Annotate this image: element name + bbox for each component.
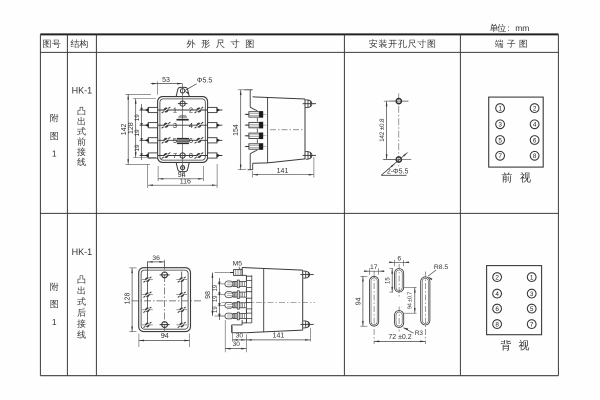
- svg-text:19: 19: [134, 114, 141, 121]
- svg-text:154: 154: [233, 124, 240, 136]
- svg-text:3: 3: [530, 291, 534, 298]
- svg-text:1: 1: [498, 105, 502, 112]
- svg-text:4: 4: [189, 121, 193, 130]
- svg-text:19: 19: [134, 129, 141, 136]
- svg-text:6: 6: [397, 255, 401, 262]
- svg-text:19: 19: [213, 284, 219, 291]
- svg-text:142 ±0.8: 142 ±0.8: [379, 118, 386, 142]
- svg-text:4: 4: [495, 291, 499, 298]
- svg-text:30: 30: [236, 333, 244, 340]
- svg-text:2: 2: [189, 106, 193, 115]
- svg-text:53: 53: [162, 77, 170, 84]
- svg-text:141: 141: [277, 168, 289, 175]
- svg-text:1: 1: [173, 106, 177, 115]
- svg-text:94 ±0.7: 94 ±0.7: [408, 292, 414, 309]
- svg-text:4: 4: [533, 122, 537, 129]
- svg-text:128: 128: [125, 293, 132, 305]
- svg-text:17: 17: [370, 264, 378, 271]
- svg-text:2: 2: [495, 274, 499, 281]
- svg-text:141: 141: [273, 332, 285, 339]
- svg-text:142: 142: [121, 123, 128, 135]
- svg-text:Φ5.5: Φ5.5: [197, 78, 212, 85]
- svg-text:6: 6: [495, 306, 499, 313]
- svg-text:5: 5: [498, 137, 502, 144]
- svg-text:8: 8: [533, 153, 537, 160]
- svg-text:7: 7: [530, 321, 534, 328]
- svg-text:1: 1: [530, 274, 534, 281]
- svg-text:2: 2: [533, 105, 537, 112]
- svg-text:7: 7: [173, 151, 177, 160]
- svg-text:1: 1: [52, 317, 57, 327]
- svg-text:19: 19: [213, 295, 219, 302]
- svg-text:HK-1: HK-1: [72, 247, 93, 257]
- svg-text:mm: mm: [515, 23, 529, 33]
- svg-text:15: 15: [386, 277, 392, 284]
- svg-text:3: 3: [173, 121, 177, 130]
- svg-text:3: 3: [498, 122, 502, 129]
- svg-text:R8.5: R8.5: [434, 264, 449, 271]
- svg-text:94: 94: [161, 333, 169, 340]
- svg-text:5: 5: [530, 306, 534, 313]
- svg-text:19: 19: [213, 306, 219, 313]
- svg-text:98: 98: [205, 291, 212, 299]
- svg-text:36: 36: [152, 255, 160, 262]
- svg-text:116: 116: [180, 179, 191, 186]
- svg-text:1: 1: [52, 148, 57, 158]
- svg-text:R3: R3: [415, 330, 424, 337]
- svg-text:8: 8: [189, 151, 193, 160]
- svg-text:2-Φ5.5: 2-Φ5.5: [387, 169, 409, 176]
- svg-text:30: 30: [233, 341, 241, 348]
- svg-text:M5: M5: [233, 261, 243, 268]
- svg-text:6: 6: [189, 136, 193, 145]
- svg-text:94: 94: [355, 297, 362, 305]
- svg-text:7: 7: [498, 153, 502, 160]
- svg-text:8: 8: [495, 321, 499, 328]
- svg-text:5: 5: [173, 136, 177, 145]
- svg-text:72 ±0.2: 72 ±0.2: [388, 334, 411, 341]
- svg-text::: :: [507, 24, 509, 33]
- svg-text:HK-1: HK-1: [72, 85, 93, 95]
- svg-text:6: 6: [533, 137, 537, 144]
- svg-text:19: 19: [134, 144, 141, 151]
